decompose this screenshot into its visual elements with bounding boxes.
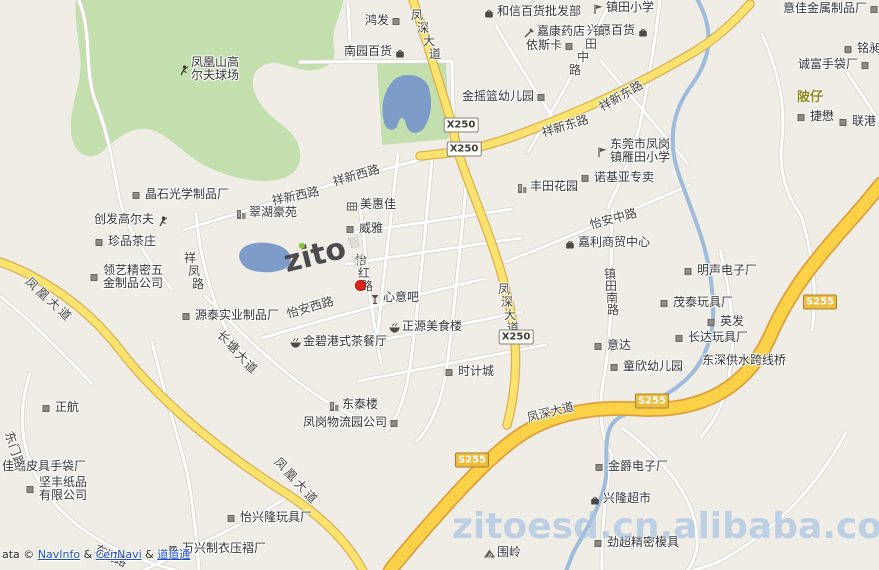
- place-name-label: 陂仔: [797, 86, 823, 105]
- bag-icon: [483, 7, 496, 20]
- poi-label: 茂泰玩具厂: [673, 296, 733, 309]
- golf-icon: [156, 215, 169, 228]
- golf-icon: [177, 64, 190, 77]
- poi-label: 金爵电子厂: [608, 460, 668, 473]
- poi-label: 围岭: [497, 546, 521, 559]
- factory-icon: [226, 513, 239, 526]
- factory-icon: [391, 16, 404, 29]
- building-icon: [328, 400, 341, 413]
- factory-icon: [94, 237, 107, 250]
- factory-icon: [25, 484, 38, 497]
- poi-label: 诚富手袋厂: [798, 58, 858, 71]
- poi-label: 东莞市凤岗镇雁田小学: [610, 138, 670, 164]
- poi-label: 童欣幼儿园: [623, 360, 683, 373]
- factory-icon: [609, 362, 622, 375]
- factory-icon: [131, 190, 144, 203]
- poi-label: 金摇篮幼儿园: [462, 90, 534, 103]
- bag-icon: [564, 238, 577, 251]
- route-number-badge: X250: [444, 118, 479, 133]
- route-number-badge: S255: [803, 295, 837, 310]
- poi-label: 明声电子厂: [697, 264, 757, 277]
- road-name-label: 凤深大道: [525, 398, 576, 426]
- factory-icon: [389, 418, 402, 431]
- attribution-link[interactable]: 道道通: [157, 548, 190, 561]
- poi-label: 美惠佳: [360, 198, 396, 211]
- poi-label: 兴隆超市: [603, 492, 651, 505]
- poi-label: 创发高尔夫: [94, 213, 154, 226]
- poi-label: 铭昶: [857, 42, 879, 55]
- shop-icon: [346, 200, 359, 213]
- road-name-label: 祥新东路: [596, 76, 646, 115]
- mountain-icon: [483, 548, 496, 561]
- attribution-separator: &: [142, 548, 158, 561]
- road-name-label: 路: [606, 301, 620, 318]
- poi-label: 坚丰纸品有限公司: [39, 476, 87, 502]
- poi-label: 正源美食楼: [402, 320, 462, 333]
- alibaba-url-watermark: zitoesd.cn.alibaba.com: [452, 506, 879, 547]
- poi-label: 和信百货批发部: [497, 5, 581, 18]
- school-icon: [592, 3, 605, 16]
- factory-icon: [580, 173, 593, 186]
- poi-label: 东深供水跨线桥: [702, 354, 786, 367]
- factory-icon: [843, 44, 856, 57]
- poi-label: 凤岗物流园公司: [303, 416, 387, 429]
- road-name-label: 道: [428, 45, 442, 62]
- factory-icon: [706, 317, 719, 330]
- route-number-badge: S255: [455, 453, 489, 468]
- poi-label: 南园百货: [344, 45, 392, 58]
- poi-label: 时计城: [458, 365, 494, 378]
- poi-label: 意佳金属制品厂: [783, 2, 867, 15]
- road-name-label: 祥新东路: [540, 110, 591, 140]
- poi-label: 镇田小学: [606, 1, 654, 14]
- building-icon: [516, 182, 529, 195]
- factory-icon: [674, 333, 687, 346]
- poi-label: 凤凰山高尔夫球场: [191, 56, 239, 82]
- route-number-badge: X250: [499, 330, 534, 345]
- poi-label: 长达玩具厂: [688, 331, 748, 344]
- poi-label: 捷懋: [810, 110, 834, 123]
- location-marker-dot: [355, 280, 366, 291]
- road-name-label: 路: [568, 61, 582, 78]
- poi-label: 金碧港式茶餐厅: [303, 335, 387, 348]
- road-name-label: 怡安西路: [285, 292, 336, 322]
- factory-icon: [796, 112, 809, 125]
- poi-label: 英发: [720, 315, 744, 328]
- poi-label: 依斯卡: [526, 39, 562, 52]
- building-icon: [235, 208, 248, 221]
- poi-label: 万兴制衣压褶厂: [182, 542, 266, 555]
- attribution-link[interactable]: NavInfo: [38, 548, 80, 561]
- map-attribution: ata © NavInfo & CenNavi & 道道通: [2, 546, 190, 562]
- poi-label: 丰田花园: [530, 180, 578, 193]
- restaurant-icon: [388, 322, 401, 335]
- poi-label: 正航: [55, 401, 79, 414]
- factory-icon: [181, 311, 194, 324]
- poi-label: 嘉康药店: [537, 25, 585, 38]
- poi-label: 诺基亚专卖: [594, 171, 654, 184]
- factory-icon: [41, 403, 54, 416]
- map-overlay: 鸿发和信百货批发部镇田小学意佳金属制品厂嘉康药店兴惠百货南园百货依斯卡铭昶凤凰山…: [0, 0, 879, 570]
- bar-icon: [369, 293, 382, 306]
- factory-icon: [444, 367, 457, 380]
- route-number-badge: X250: [447, 142, 482, 157]
- map-canvas[interactable]: 鸿发和信百货批发部镇田小学意佳金属制品厂嘉康药店兴惠百货南园百货依斯卡铭昶凤凰山…: [0, 0, 879, 570]
- poi-label: 东泰楼: [342, 398, 378, 411]
- factory-icon: [594, 462, 607, 475]
- poi-label: 领艺精密五金制品公司: [103, 264, 163, 290]
- restaurant-icon: [289, 337, 302, 350]
- poi-label: 意达: [607, 339, 631, 352]
- attribution-links: NavInfo & CenNavi & 道道通: [38, 548, 190, 561]
- poi-label: 嘉利商贸中心: [578, 236, 650, 249]
- poi-label: 威雅: [359, 222, 383, 235]
- bag-icon: [394, 47, 407, 60]
- poi-label: 鸿发: [365, 14, 389, 27]
- route-number-badge: S255: [635, 394, 669, 409]
- factory-icon: [89, 272, 102, 285]
- road-name-label: 祥新西路: [331, 160, 382, 190]
- poi-label: 珍品茶庄: [108, 235, 156, 248]
- road-name-label: 路: [191, 275, 205, 292]
- poi-label: 心意吧: [383, 291, 419, 304]
- factory-icon: [838, 117, 851, 130]
- attribution-link[interactable]: CenNavi: [96, 548, 142, 561]
- poi-label: 晶石光学制品厂: [145, 188, 229, 201]
- road-name-label: 怡安中路: [588, 204, 639, 233]
- bag-icon: [637, 26, 650, 39]
- factory-icon: [536, 92, 549, 105]
- poi-label: 怡兴隆玩具厂: [240, 511, 312, 524]
- factory-icon: [869, 4, 879, 17]
- attribution-separator: &: [80, 548, 96, 561]
- school-icon: [596, 146, 609, 159]
- factory-icon: [683, 266, 696, 279]
- factory-icon: [659, 298, 672, 311]
- poi-label: 源泰实业制品厂: [195, 309, 279, 322]
- factory-icon: [860, 60, 873, 73]
- poi-label: 联港: [852, 115, 876, 128]
- attribution-prefix: ata ©: [2, 548, 34, 561]
- factory-icon: [593, 341, 606, 354]
